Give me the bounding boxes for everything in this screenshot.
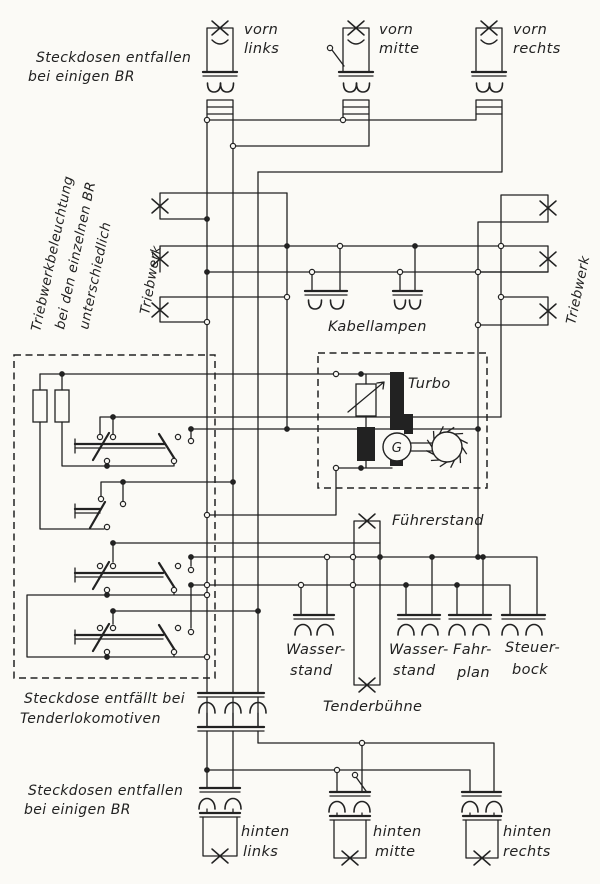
label-vorn-links-1: vorn bbox=[244, 22, 278, 38]
junction-ring bbox=[120, 501, 125, 506]
label-turbo: Turbo bbox=[408, 376, 451, 392]
generator-frame-bar bbox=[390, 372, 404, 430]
labels: Steckdosen entfallen bei einigen BR vorn… bbox=[20, 22, 594, 860]
junction-ring bbox=[104, 524, 109, 529]
rheostat-symbol bbox=[356, 384, 376, 416]
junction-dot bbox=[476, 427, 481, 432]
junction-dot bbox=[285, 244, 290, 249]
connector-and-lamp-symbols bbox=[60, 21, 556, 865]
socket-hook-icon bbox=[422, 625, 438, 636]
socket-hook-icon bbox=[295, 625, 311, 636]
junction-ring bbox=[350, 582, 355, 587]
label-steuerbock-line2: bock bbox=[512, 662, 548, 678]
junction-dot bbox=[378, 555, 383, 560]
socket-hook-icon bbox=[473, 625, 489, 636]
junction-dot bbox=[105, 464, 110, 469]
label-vorn-rechts-2: rechts bbox=[513, 41, 561, 57]
turbine-blade-tick bbox=[462, 447, 467, 454]
junction-ring bbox=[104, 587, 109, 592]
locomotive-lighting-wiring-diagram: Steckdosen entfallen bei einigen BR vorn… bbox=[0, 0, 600, 884]
lamp-arc-icon bbox=[348, 40, 364, 44]
junction-ring bbox=[284, 294, 289, 299]
note-top-line2: bei einigen BR bbox=[28, 69, 135, 85]
junction-ring bbox=[97, 625, 102, 630]
junction-ring bbox=[188, 567, 193, 572]
note-bottom-line2: bei einigen BR bbox=[24, 802, 131, 818]
plug-contact-icon bbox=[331, 300, 344, 309]
plug-contact-icon bbox=[309, 300, 322, 309]
socket-hook-icon bbox=[449, 625, 465, 636]
junction-ring bbox=[309, 269, 314, 274]
socket-hook-icon bbox=[398, 625, 414, 636]
junction-dot bbox=[476, 555, 481, 560]
junction-dot bbox=[189, 427, 194, 432]
turbine-wheel bbox=[432, 432, 462, 462]
junction-dot bbox=[121, 480, 126, 485]
lamp-arc-icon bbox=[481, 40, 497, 44]
junction-dot bbox=[205, 270, 210, 275]
junction-dot bbox=[231, 480, 236, 485]
junction-ring bbox=[327, 45, 332, 50]
note-top-line1: Steckdosen entfallen bbox=[36, 50, 191, 66]
junction-ring bbox=[188, 438, 193, 443]
plug-contact-icon bbox=[477, 83, 490, 92]
turbine-blade-tick bbox=[440, 462, 447, 467]
junction-dot bbox=[481, 555, 486, 560]
triebwerk-left-lamps-wires bbox=[160, 193, 548, 322]
schematic-page: Steckdosen entfallen bei einigen BR vorn… bbox=[0, 0, 600, 884]
socket-hook-icon bbox=[502, 625, 518, 636]
junction-ring bbox=[97, 563, 102, 568]
label-triebwerk-right: Triebwerk bbox=[563, 254, 593, 326]
junction-dot bbox=[105, 655, 110, 660]
junction-ring bbox=[324, 554, 329, 559]
junction-ring bbox=[110, 625, 115, 630]
triebwerk-right-lamps-wires bbox=[478, 195, 548, 557]
label-tenderbuehne: Tenderbühne bbox=[323, 699, 422, 715]
junction-ring bbox=[498, 243, 503, 248]
label-kabellampen: Kabellampen bbox=[328, 319, 427, 335]
junction-dot bbox=[205, 217, 210, 222]
junction-ring bbox=[397, 269, 402, 274]
junction-ring bbox=[204, 582, 209, 587]
junction-ring bbox=[97, 434, 102, 439]
junction-ring bbox=[298, 582, 303, 587]
junction-ring bbox=[337, 243, 342, 248]
label-vorn-rechts-1: vorn bbox=[513, 22, 547, 38]
plug-contact-icon bbox=[357, 83, 370, 92]
junction-dot bbox=[111, 541, 116, 546]
generator-letter: G bbox=[392, 441, 402, 456]
fuehrerstand-lamp-loop bbox=[354, 521, 380, 685]
label-wasserstand1-line2: stand bbox=[290, 663, 333, 679]
switch-blade bbox=[90, 502, 105, 528]
junction-ring bbox=[350, 554, 355, 559]
label-triebwerk-left: Triebwerk bbox=[137, 244, 165, 316]
junction-dot bbox=[455, 583, 460, 588]
junction-ring bbox=[204, 512, 209, 517]
junction-ring bbox=[475, 269, 480, 274]
junction-ring bbox=[204, 117, 209, 122]
label-wasserstand1-line1: Wasser- bbox=[286, 642, 346, 658]
junction-dot bbox=[404, 583, 409, 588]
junction-dot bbox=[189, 583, 194, 588]
note-tender-line1: Steckdose entfällt bei bbox=[24, 691, 185, 707]
note-bottom-line1: Steckdosen entfallen bbox=[28, 783, 183, 799]
junction-dot bbox=[256, 609, 261, 614]
label-vorn-mitte-1: vorn bbox=[379, 22, 413, 38]
socket-hook-icon bbox=[486, 802, 502, 813]
label-wasserstand2-line1: Wasser- bbox=[389, 642, 449, 658]
label-hinten-mitte-1: hinten bbox=[373, 824, 422, 840]
resistor-block bbox=[357, 427, 375, 461]
socket-hook-icon bbox=[462, 802, 478, 813]
junction-ring bbox=[230, 143, 235, 148]
junction-ring bbox=[110, 563, 115, 568]
plug-contact-icon bbox=[395, 300, 406, 309]
label-wasserstand2-line2: stand bbox=[393, 663, 436, 679]
label-fuehrerstand: Führerstand bbox=[392, 513, 484, 529]
plug-contact-icon bbox=[410, 300, 421, 309]
plug-contact-icon bbox=[490, 83, 503, 92]
junction-ring bbox=[175, 563, 180, 568]
label-vorn-links-2: links bbox=[244, 41, 279, 57]
junction-ring bbox=[352, 772, 357, 777]
fuse-symbol bbox=[55, 390, 69, 422]
junction-ring bbox=[171, 587, 176, 592]
top-bus-lines bbox=[207, 50, 502, 172]
junction-ring bbox=[475, 322, 480, 327]
junction-ring bbox=[110, 434, 115, 439]
junction-dot bbox=[105, 593, 110, 598]
label-vorn-mitte-2: mitte bbox=[379, 41, 419, 57]
junction-ring bbox=[340, 117, 345, 122]
junction-dot bbox=[189, 555, 194, 560]
junction-ring bbox=[175, 625, 180, 630]
junction-dot bbox=[359, 466, 364, 471]
label-hinten-links-2: links bbox=[243, 844, 278, 860]
junction-ring bbox=[204, 319, 209, 324]
label-hinten-rechts-2: rechts bbox=[503, 844, 551, 860]
junction-dot bbox=[111, 609, 116, 614]
socket-hook-icon bbox=[225, 799, 241, 810]
front-plug-blocks bbox=[207, 100, 502, 114]
label-steuerbock-line1: Steuer- bbox=[505, 640, 560, 656]
junction-dot bbox=[413, 244, 418, 249]
label-hinten-links-1: hinten bbox=[241, 824, 290, 840]
junction-dot bbox=[430, 555, 435, 560]
label-hinten-mitte-2: mitte bbox=[375, 844, 415, 860]
junction-ring bbox=[175, 434, 180, 439]
junction-ring bbox=[204, 592, 209, 597]
junction-ring bbox=[104, 458, 109, 463]
lamp-arc-icon bbox=[212, 40, 228, 44]
junction-ring bbox=[498, 294, 503, 299]
junction-dot bbox=[205, 768, 210, 773]
junction-ring bbox=[98, 496, 103, 501]
socket-hook-icon bbox=[317, 625, 333, 636]
label-hinten-rechts-1: hinten bbox=[503, 824, 552, 840]
junction-dot bbox=[359, 372, 364, 377]
junction-ring bbox=[334, 767, 339, 772]
socket-hook-icon bbox=[354, 802, 370, 813]
junction-ring bbox=[171, 649, 176, 654]
junction-ring bbox=[333, 465, 338, 470]
junction-dot bbox=[285, 427, 290, 432]
socket-hook-icon bbox=[526, 625, 542, 636]
junction-ring bbox=[188, 629, 193, 634]
junction-ring bbox=[204, 654, 209, 659]
label-fahrplan-line2: plan bbox=[456, 665, 490, 681]
junction-dot bbox=[111, 415, 116, 420]
junction-dot bbox=[60, 372, 65, 377]
plug-contact-icon bbox=[344, 83, 357, 92]
fuse-symbol bbox=[33, 390, 47, 422]
socket-hook-icon bbox=[329, 802, 345, 813]
note-tender-line2: Tenderlokomotiven bbox=[20, 711, 161, 727]
kabellampen-wires bbox=[312, 246, 415, 291]
plug-contact-icon bbox=[221, 83, 234, 92]
junction-ring bbox=[359, 740, 364, 745]
junction-ring bbox=[104, 649, 109, 654]
junction-ring bbox=[333, 371, 338, 376]
generator-frame-step bbox=[404, 414, 413, 434]
label-fahrplan-line1: Fahr- bbox=[453, 642, 492, 658]
socket-hook-icon bbox=[199, 799, 215, 810]
junction-ring bbox=[171, 458, 176, 463]
main-vertical-buses bbox=[207, 114, 287, 788]
plug-contact-icon bbox=[208, 83, 221, 92]
